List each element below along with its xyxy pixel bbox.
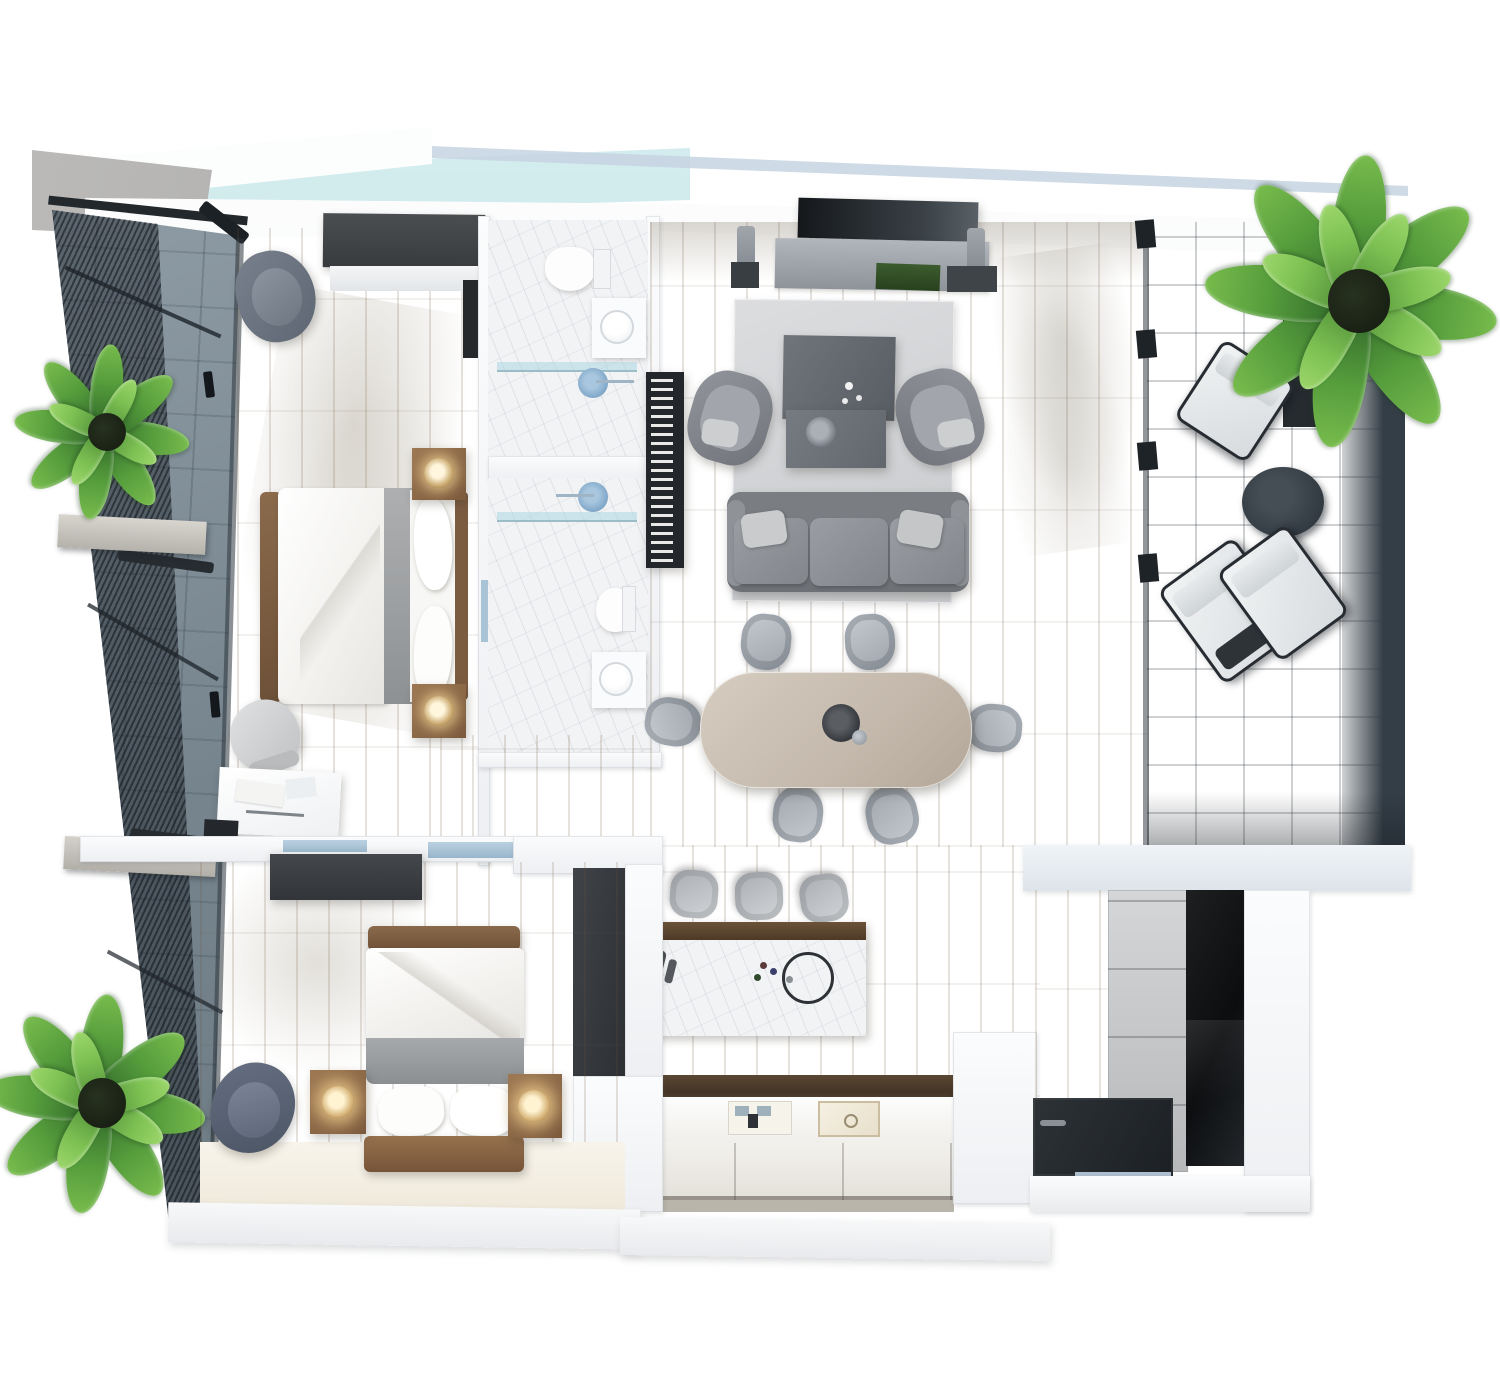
bar-stool-2	[734, 871, 784, 921]
speaker-left-base	[731, 262, 759, 288]
sofa-cushion-2	[810, 518, 888, 586]
bathroom2-door-glass	[481, 580, 488, 642]
counter-dark-strip	[628, 1075, 954, 1099]
shower-head-top	[578, 368, 608, 398]
glass-post-4	[1138, 553, 1159, 583]
cabinet-gloss	[1186, 1020, 1246, 1166]
cooktop-control-2	[757, 1106, 771, 1116]
nightstand-bottom-lamp	[424, 696, 454, 726]
sofa-pillow-right	[895, 508, 944, 549]
master-bed-duvet-fold	[300, 492, 380, 700]
desk-paper-2	[285, 776, 317, 799]
entry-top-wall-band	[1023, 845, 1411, 891]
coffee-table-cups	[845, 382, 853, 390]
bed2-duvet-fold	[370, 952, 520, 1040]
island-top-strip	[636, 922, 866, 942]
balcony-plant-upper	[28, 352, 186, 512]
glass-post-2	[1136, 329, 1157, 359]
bed2-headboard	[364, 1136, 524, 1172]
nightstand-top-lamp	[424, 458, 454, 488]
cooktop-control-1	[735, 1106, 749, 1116]
entry-wood-floor	[1035, 890, 1110, 1102]
island-plate-circle	[782, 952, 834, 1004]
hall-wall-vertical-white	[625, 864, 663, 1080]
shower-shelf-top	[497, 362, 637, 372]
floor-plan-render	[0, 0, 1500, 1379]
bench-shelf-upper	[57, 514, 207, 555]
terrace-plant	[1228, 168, 1490, 434]
wardrobe-ledge	[330, 266, 482, 291]
table-vase	[806, 417, 836, 447]
master-bed-head-rail	[455, 492, 468, 700]
shower-arm-top	[596, 380, 634, 383]
glass-post-1	[1135, 219, 1156, 249]
entry-door-mat	[1033, 1098, 1173, 1176]
vanity-top-basin	[600, 310, 634, 344]
kitchen-end-wall	[953, 1032, 1037, 1204]
vanity-bottom-basin	[599, 662, 633, 696]
toilet-top-tank	[593, 249, 611, 289]
balcony-plant-lower	[4, 998, 200, 1208]
coffee-table-upper	[782, 335, 895, 421]
island-berries	[760, 962, 767, 969]
bathroom-divider-wall	[488, 456, 648, 480]
glass-slider-2	[428, 842, 514, 858]
entry-bottom-wall	[1030, 1176, 1310, 1212]
nightstand2-right-lamp	[518, 1090, 550, 1122]
coffee-table-lower	[786, 410, 886, 468]
toilet-bottom-tank	[622, 586, 636, 632]
terrace-glass-wall-line	[1143, 222, 1149, 862]
bar-stool-1	[668, 868, 719, 919]
cooktop-knob	[748, 1114, 758, 1128]
bookshelf-books	[651, 378, 673, 562]
dresser-dark	[270, 852, 422, 900]
cabinet-kick	[628, 1200, 954, 1212]
console-plant-tray	[876, 263, 941, 291]
master-bed-throw	[384, 488, 412, 704]
speaker-right-base	[947, 266, 997, 292]
bed2-throw	[366, 1038, 524, 1084]
shower-shelf-bottom	[497, 512, 637, 522]
armchair-left-pillow	[700, 418, 739, 449]
outer-wall-bottom-left	[168, 1202, 641, 1249]
table-centerpiece-cup	[852, 730, 867, 745]
shower-head-bottom	[578, 482, 608, 512]
sofa-pillow-left	[740, 509, 788, 549]
wall-tv	[798, 198, 979, 243]
mat-handle	[1040, 1120, 1066, 1126]
nightstand2-left-lamp	[322, 1086, 354, 1118]
shower-arm-bottom	[556, 494, 594, 497]
entry-right-wall	[1244, 890, 1310, 1212]
wardrobe	[323, 213, 486, 269]
glass-post-3	[1137, 441, 1158, 471]
outer-wall-bottom-right	[620, 1217, 1050, 1261]
toilet-top	[545, 247, 595, 291]
sink-drain	[844, 1114, 858, 1128]
